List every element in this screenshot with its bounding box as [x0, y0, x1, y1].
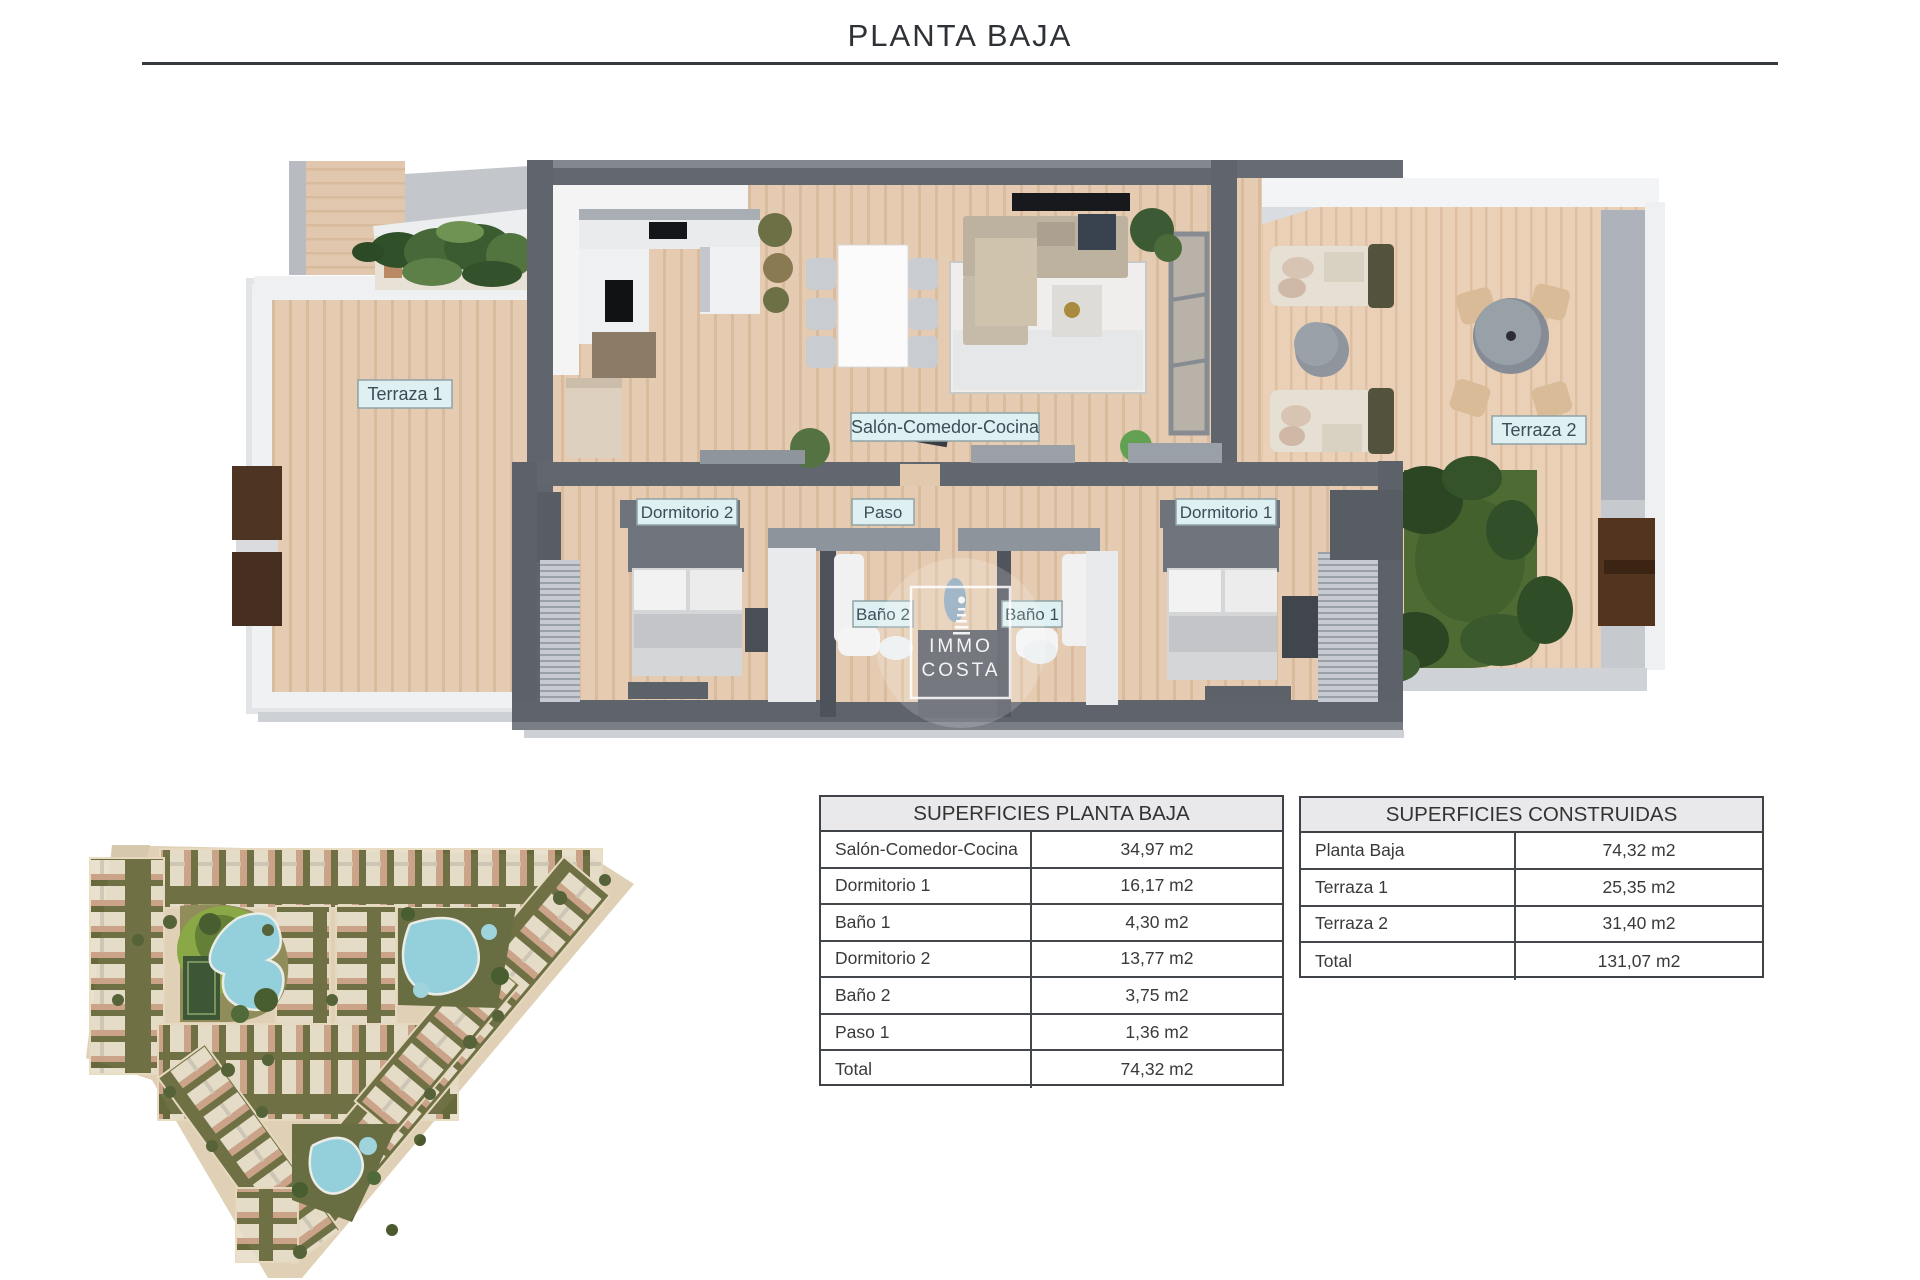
svg-text:Salón-Comedor-Cocina: Salón-Comedor-Cocina — [851, 417, 1040, 437]
svg-text:COSTA: COSTA — [921, 660, 1000, 681]
svg-text:Paso: Paso — [864, 503, 903, 522]
svg-text:Dormitorio 1: Dormitorio 1 — [1180, 503, 1273, 522]
svg-text:IMMO: IMMO — [929, 636, 993, 657]
svg-text:Dormitorio 2: Dormitorio 2 — [641, 503, 734, 522]
svg-text:Terraza 1: Terraza 1 — [367, 384, 442, 404]
svg-text:Terraza 2: Terraza 2 — [1501, 420, 1576, 440]
